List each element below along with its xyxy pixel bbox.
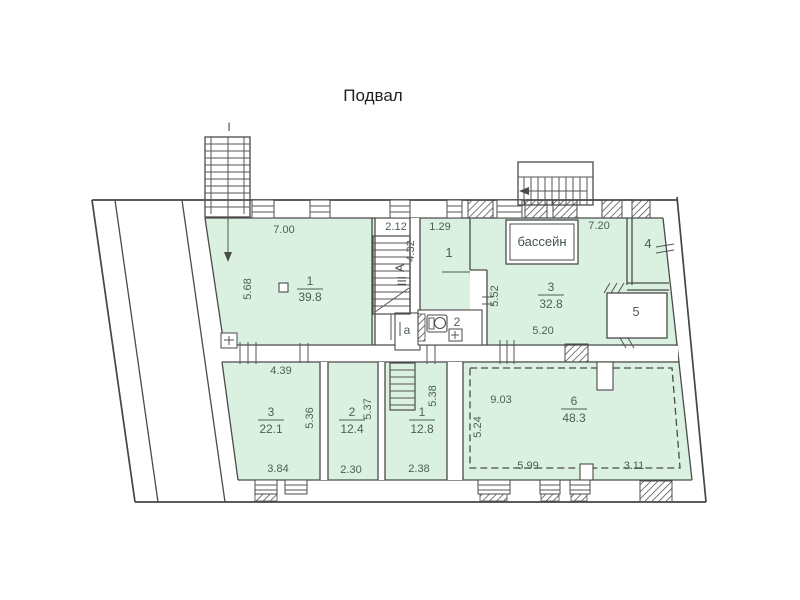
room3-dim-bottom: 3.84 [267,463,288,475]
window-icon [285,480,307,494]
room-hall-fill [205,218,375,345]
room2-number: 2 [349,405,356,419]
wall-notch [580,464,593,480]
window-icon [447,200,462,218]
rooma-number: а [404,323,411,337]
floor-plan-page: Подвал [0,0,800,600]
room3-number: 3 [268,405,275,419]
stairwell-dim-top: 2.12 [385,221,406,233]
wall-hatch [602,200,622,218]
room3-dim-right: 5.36 [304,407,316,428]
wall-hatch [525,200,547,218]
room2-dim-right: 5.37 [362,398,374,419]
cell1-number: 1 [445,245,452,260]
pool-label: бассейн [517,234,566,249]
stair-top-right [518,162,593,205]
room1b-dim-right: 5.38 [427,385,439,406]
wall-hatch [565,344,588,362]
wall-hatch [468,200,493,218]
hall-area: 39.8 [298,290,322,304]
floor-title: Подвал [343,86,402,105]
hall-dim-top: 7.00 [273,224,294,236]
wall-notch [597,362,613,390]
window-icon [390,200,410,218]
room6-number: 6 [571,394,578,408]
room6-dim-left: 5.24 [472,416,484,437]
room2-dim-bottom: 2.30 [340,464,361,476]
room6-area: 48.3 [562,411,586,425]
room1b-dim-bottom: 2.38 [408,463,429,475]
cell1-dim-top: 1.29 [429,221,450,233]
bottom-wall-openings [255,480,672,502]
room3-dim-top: 4.39 [270,365,291,377]
poolroom-dim-bottom: 5.20 [532,325,553,337]
section-roman: III [395,276,409,286]
column-icon [279,283,288,292]
window-icon [310,200,330,218]
poolroom-dim-left: 5.52 [489,285,501,306]
shaft-icon [221,333,237,348]
window-icon [478,480,510,501]
window-icon [540,480,560,501]
top-wall-openings [252,200,650,218]
room4-number: 4 [644,236,651,251]
room6-dim-bottom-left: 5.99 [517,460,538,472]
floor-plan: Подвал [0,0,800,600]
room5-number: 5 [632,304,639,319]
toilet-icon [427,315,447,332]
room-2-fill [328,362,378,480]
room2-area: 12.4 [340,422,364,436]
wall-hatch [640,481,672,502]
wall-hatch [418,314,425,341]
poolroom-dim-top: 7.20 [588,220,609,232]
stair-axis-marker: I [227,120,230,134]
hall-number: 1 [307,274,314,288]
poolroom-area: 32.8 [539,297,563,311]
vent-shaft-icon [449,329,462,341]
window-icon [252,200,274,218]
section-letter: А [393,264,407,272]
window-icon [255,480,277,501]
room6-dim-bottom-right: 3.11 [624,460,645,472]
hall-dim-left: 5.68 [242,278,254,299]
room1b-area: 12.8 [410,422,434,436]
room1b-number: 1 [419,405,426,419]
wall-hatch [632,200,650,218]
room3-area: 22.1 [259,422,283,436]
stairwell-dim-side: 4.32 [405,240,417,261]
wc-number: 2 [454,315,461,329]
window-icon [570,480,590,501]
room6-dim-top: 9.03 [490,394,511,406]
poolroom-number: 3 [548,280,555,294]
